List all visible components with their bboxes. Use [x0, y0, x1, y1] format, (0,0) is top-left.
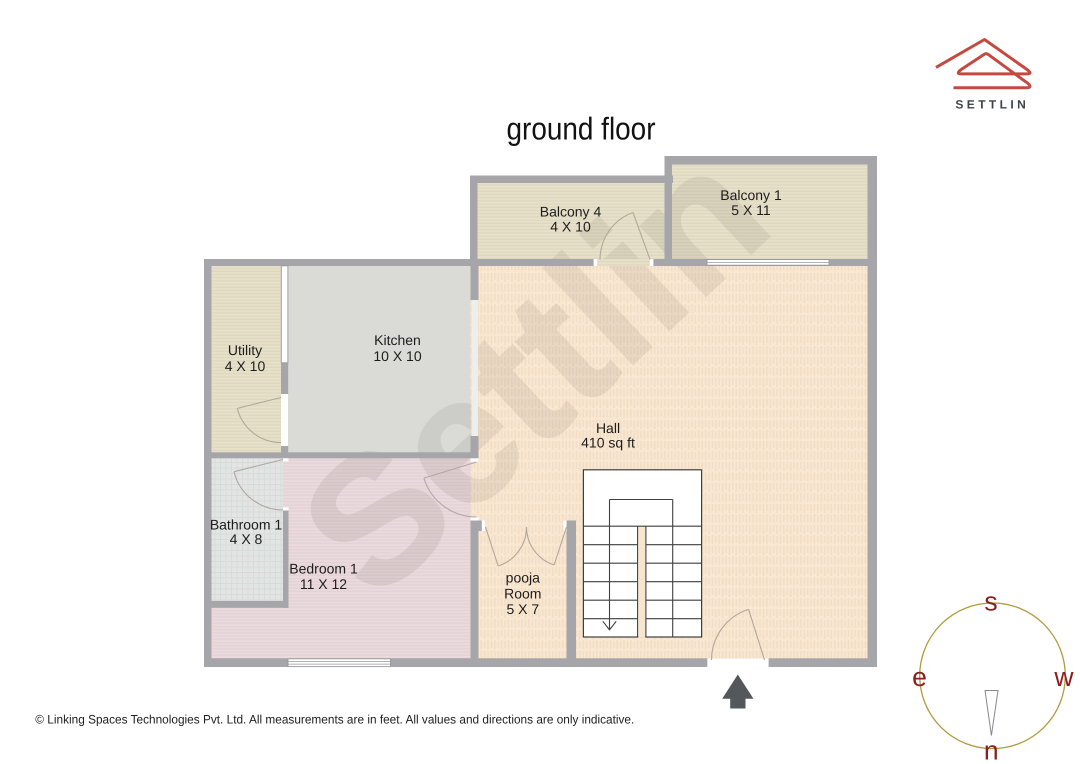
svg-text:Bedroom 1: Bedroom 1 — [289, 560, 358, 576]
svg-text:Balcony 1: Balcony 1 — [720, 187, 782, 203]
svg-text:4 X 10: 4 X 10 — [225, 358, 266, 374]
svg-text:5 X 11: 5 X 11 — [731, 202, 771, 218]
svg-text:Utility: Utility — [228, 342, 262, 358]
svg-text:5 X 7: 5 X 7 — [506, 601, 539, 617]
svg-text:n: n — [984, 735, 999, 764]
svg-text:410 sq ft: 410 sq ft — [581, 435, 635, 451]
svg-text:Bathroom 1: Bathroom 1 — [210, 516, 283, 532]
svg-text:s: s — [984, 587, 997, 617]
svg-text:pooja: pooja — [506, 570, 540, 586]
svg-text:Kitchen: Kitchen — [374, 332, 421, 348]
svg-text:SETTLIN: SETTLIN — [955, 98, 1029, 112]
svg-text:ground floor: ground floor — [507, 111, 656, 147]
svg-text:10 X 10: 10 X 10 — [373, 348, 421, 364]
svg-text:e: e — [912, 662, 927, 692]
svg-text:w: w — [1053, 662, 1074, 692]
svg-text:Balcony 4: Balcony 4 — [540, 204, 602, 220]
svg-text:4 X 8: 4 X 8 — [230, 531, 263, 547]
svg-text:© Linking Spaces Technologies: © Linking Spaces Technologies Pvt. Ltd. … — [35, 713, 634, 727]
svg-text:11 X 12: 11 X 12 — [300, 576, 347, 592]
svg-text:4 X 10: 4 X 10 — [550, 219, 591, 235]
svg-text:Room: Room — [504, 585, 541, 601]
